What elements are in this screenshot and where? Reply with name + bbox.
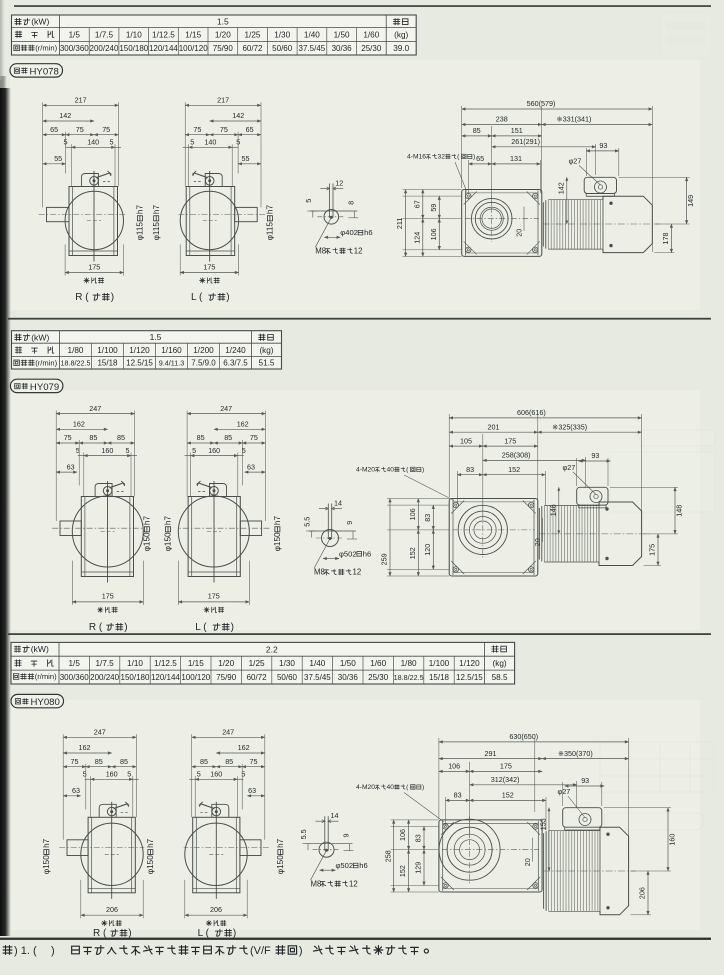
- svg-text:140: 140: [204, 138, 216, 147]
- svg-text:75: 75: [64, 433, 72, 442]
- svg-text:h7: h7: [276, 838, 285, 848]
- svg-text:(kW): (kW): [31, 644, 49, 654]
- svg-text:9: 9: [345, 521, 354, 525]
- svg-text:φ115: φ115: [266, 222, 275, 241]
- svg-text:12: 12: [335, 179, 343, 188]
- svg-text:L (: L (: [198, 928, 210, 939]
- svg-text:175: 175: [102, 592, 114, 601]
- svg-text:247: 247: [89, 404, 101, 413]
- svg-text:(kg): (kg): [394, 31, 408, 40]
- svg-text:217: 217: [75, 96, 87, 105]
- svg-text:R (: R (: [89, 622, 103, 633]
- svg-text:67: 67: [412, 200, 421, 208]
- svg-text:1/200: 1/200: [193, 346, 214, 355]
- svg-text:h6: h6: [364, 228, 372, 237]
- svg-text:M8: M8: [314, 568, 325, 577]
- svg-text:63: 63: [67, 462, 75, 471]
- svg-text:59: 59: [429, 204, 438, 212]
- svg-text:15/18: 15/18: [429, 673, 450, 682]
- svg-text:): ): [299, 945, 303, 957]
- svg-text:258: 258: [383, 850, 392, 862]
- svg-text:51.5: 51.5: [259, 359, 275, 368]
- svg-text:85: 85: [95, 757, 103, 766]
- svg-text:142: 142: [556, 182, 565, 194]
- svg-text:9: 9: [342, 834, 351, 838]
- svg-text:(r/min): (r/min): [35, 359, 57, 368]
- svg-text:15/18: 15/18: [97, 359, 118, 368]
- svg-text:5: 5: [192, 446, 196, 455]
- svg-text:65: 65: [476, 154, 484, 163]
- svg-text:): ): [111, 292, 114, 303]
- svg-text:HY079: HY079: [30, 382, 59, 393]
- svg-text:75: 75: [193, 125, 201, 134]
- svg-text:h7: h7: [164, 516, 173, 526]
- svg-text:20: 20: [515, 229, 524, 237]
- svg-text:200/240: 200/240: [90, 44, 119, 53]
- svg-text:7.5/9.0: 7.5/9.0: [191, 359, 216, 368]
- svg-text:291: 291: [485, 749, 497, 758]
- svg-text:(V/F: (V/F: [250, 945, 271, 957]
- svg-text:h6: h6: [363, 549, 371, 558]
- svg-text:1.5: 1.5: [217, 16, 229, 26]
- svg-text:151: 151: [511, 126, 523, 135]
- svg-text:20: 20: [523, 858, 532, 866]
- svg-text:85: 85: [89, 433, 97, 442]
- svg-text:φ150: φ150: [143, 532, 152, 551]
- svg-text:h6: h6: [359, 861, 367, 870]
- svg-text:): ): [128, 928, 131, 939]
- svg-text:※331(341): ※331(341): [557, 115, 592, 124]
- svg-text:M8: M8: [311, 879, 322, 888]
- svg-text:175: 175: [504, 436, 516, 445]
- svg-text:85: 85: [120, 757, 128, 766]
- svg-text:5: 5: [110, 138, 114, 147]
- svg-text:178: 178: [661, 233, 670, 245]
- svg-text:148: 148: [675, 505, 684, 517]
- svg-text:1/20: 1/20: [218, 659, 234, 668]
- svg-text:1/5: 1/5: [69, 659, 81, 668]
- svg-text:6.3/7.5: 6.3/7.5: [223, 359, 248, 368]
- svg-text:300/360: 300/360: [60, 673, 89, 682]
- svg-text:247: 247: [222, 728, 234, 737]
- svg-text:175: 175: [88, 262, 100, 271]
- svg-text:12: 12: [354, 247, 363, 256]
- svg-text:93: 93: [591, 451, 599, 460]
- svg-text:1/30: 1/30: [274, 31, 290, 40]
- svg-text:8: 8: [346, 201, 355, 205]
- svg-text:h7: h7: [143, 516, 152, 526]
- svg-text:4-M20: 4-M20: [356, 467, 375, 474]
- svg-text:1/15: 1/15: [185, 31, 201, 40]
- svg-text:): ): [422, 467, 424, 474]
- svg-text:h7: h7: [273, 516, 282, 526]
- svg-text:1/40: 1/40: [309, 659, 325, 668]
- svg-text:): ): [124, 622, 127, 633]
- svg-text:1/80: 1/80: [401, 659, 417, 668]
- svg-text:φ150: φ150: [276, 855, 285, 874]
- svg-text:φ27: φ27: [557, 787, 570, 796]
- svg-text:40: 40: [387, 784, 395, 791]
- svg-text:93: 93: [581, 776, 589, 785]
- svg-text:142: 142: [232, 111, 244, 120]
- svg-text:131: 131: [510, 154, 522, 163]
- svg-text:83: 83: [414, 834, 423, 842]
- svg-text:105: 105: [460, 436, 472, 445]
- svg-text:4-M16: 4-M16: [407, 154, 426, 161]
- svg-text:1/12.5: 1/12.5: [152, 31, 175, 40]
- svg-text:12.5/15: 12.5/15: [456, 673, 483, 682]
- svg-text:211: 211: [395, 218, 404, 229]
- svg-text:): ): [231, 622, 234, 633]
- svg-text:175: 175: [208, 592, 220, 601]
- svg-text:30/36: 30/36: [332, 44, 353, 53]
- svg-text:206: 206: [210, 905, 222, 914]
- svg-text:1/25: 1/25: [245, 31, 261, 40]
- svg-text:201: 201: [488, 422, 500, 431]
- svg-text:175: 175: [500, 762, 512, 771]
- svg-text:106: 106: [408, 508, 417, 520]
- svg-text:) 1. (: ) 1. (: [14, 945, 37, 957]
- svg-text:1/7.5: 1/7.5: [95, 31, 114, 40]
- svg-text:200/240: 200/240: [90, 673, 119, 682]
- svg-text:106: 106: [398, 829, 407, 841]
- svg-text:206: 206: [106, 905, 118, 914]
- svg-text:60/72: 60/72: [242, 44, 263, 53]
- svg-text:(kg): (kg): [493, 659, 507, 668]
- svg-text:20: 20: [533, 538, 542, 546]
- svg-text:12: 12: [353, 568, 362, 577]
- svg-text:(kg): (kg): [259, 346, 273, 355]
- svg-text:75: 75: [102, 125, 110, 134]
- svg-text:152: 152: [398, 865, 407, 877]
- svg-text:85: 85: [225, 757, 233, 766]
- svg-text:153: 153: [539, 818, 548, 830]
- svg-text:φ150: φ150: [164, 532, 173, 551]
- svg-text:1/7.5: 1/7.5: [95, 659, 114, 668]
- svg-text:φ502: φ502: [336, 861, 354, 870]
- svg-text:1/240: 1/240: [225, 346, 246, 355]
- svg-text:φ150: φ150: [146, 855, 155, 874]
- svg-text:L (: L (: [191, 292, 203, 303]
- svg-text:560(579): 560(579): [527, 99, 556, 108]
- svg-text:160: 160: [208, 446, 220, 455]
- svg-text:152: 152: [408, 547, 417, 559]
- svg-text:162: 162: [237, 420, 249, 429]
- svg-text:): ): [422, 784, 424, 791]
- svg-text:120/144: 120/144: [149, 44, 178, 53]
- svg-text:120: 120: [423, 544, 432, 556]
- svg-text:1/120: 1/120: [129, 346, 150, 355]
- svg-text:): ): [51, 945, 55, 957]
- svg-text:312(342): 312(342): [491, 775, 520, 784]
- svg-text:162: 162: [238, 743, 250, 752]
- svg-text:152: 152: [502, 791, 514, 800]
- svg-text:259: 259: [380, 553, 389, 565]
- svg-text:L (: L (: [195, 622, 207, 633]
- svg-text:63: 63: [248, 786, 256, 795]
- svg-text:100/120: 100/120: [179, 44, 208, 53]
- svg-text:12.5/15: 12.5/15: [126, 359, 153, 368]
- svg-text:φ27: φ27: [562, 463, 575, 472]
- svg-text:1/100: 1/100: [97, 346, 118, 355]
- svg-text:60/72: 60/72: [247, 673, 268, 682]
- svg-text:83: 83: [466, 465, 474, 474]
- svg-text:50/60: 50/60: [277, 673, 298, 682]
- svg-text:85: 85: [200, 757, 208, 766]
- svg-text:(kW): (kW): [31, 332, 49, 342]
- svg-text:h7: h7: [266, 205, 275, 215]
- svg-text:1/15: 1/15: [188, 659, 204, 668]
- svg-text:): ): [473, 154, 475, 161]
- svg-text:14: 14: [331, 811, 339, 820]
- svg-text:75: 75: [220, 125, 228, 134]
- svg-text:HY078: HY078: [30, 66, 59, 77]
- svg-text:1/60: 1/60: [370, 659, 386, 668]
- svg-text:5: 5: [126, 446, 130, 455]
- svg-text:M8: M8: [315, 247, 326, 256]
- svg-text:※350(370): ※350(370): [558, 749, 593, 758]
- svg-text:25/30: 25/30: [361, 44, 382, 53]
- svg-text:175: 175: [648, 544, 657, 556]
- svg-text:55: 55: [54, 154, 62, 163]
- svg-text:※325(335): ※325(335): [552, 422, 587, 431]
- svg-text:1/120: 1/120: [459, 659, 480, 668]
- svg-text:1/50: 1/50: [334, 31, 350, 40]
- svg-text:146: 146: [548, 504, 557, 516]
- svg-text:1/5: 1/5: [69, 31, 81, 40]
- svg-text:152: 152: [508, 465, 520, 474]
- svg-text:φ27: φ27: [569, 157, 582, 166]
- svg-text:φ150: φ150: [42, 855, 51, 874]
- svg-text:φ502: φ502: [339, 549, 357, 558]
- svg-text:65: 65: [246, 125, 254, 134]
- svg-text:32: 32: [438, 154, 446, 161]
- svg-text:h7: h7: [136, 205, 145, 215]
- svg-text:58.5: 58.5: [492, 673, 508, 682]
- svg-text:h7: h7: [152, 205, 161, 215]
- svg-text:(r/min): (r/min): [35, 44, 57, 53]
- svg-text:1/10: 1/10: [127, 659, 143, 668]
- svg-text:50/60: 50/60: [272, 44, 293, 53]
- svg-text:37.5/45: 37.5/45: [304, 673, 331, 682]
- svg-text:φ115: φ115: [152, 222, 161, 241]
- svg-text:30/36: 30/36: [338, 673, 359, 682]
- svg-text:149: 149: [686, 195, 695, 207]
- svg-text:18.8/22.5: 18.8/22.5: [61, 359, 91, 368]
- svg-text:140: 140: [87, 138, 99, 147]
- svg-text:162: 162: [79, 743, 91, 752]
- svg-text:1/80: 1/80: [68, 346, 84, 355]
- svg-text:606(616): 606(616): [517, 408, 546, 417]
- svg-text:83: 83: [423, 514, 432, 522]
- svg-text:85: 85: [117, 433, 125, 442]
- svg-text:1/160: 1/160: [161, 346, 182, 355]
- svg-text:238: 238: [496, 115, 508, 124]
- svg-text:5.5: 5.5: [303, 517, 312, 527]
- svg-text:65: 65: [50, 125, 58, 134]
- svg-text:55: 55: [242, 154, 250, 163]
- svg-text:261(291): 261(291): [511, 137, 540, 146]
- svg-text:5: 5: [304, 199, 313, 203]
- svg-text:75/90: 75/90: [216, 673, 237, 682]
- svg-text:12: 12: [349, 879, 358, 888]
- svg-text:75: 75: [250, 757, 258, 766]
- svg-text:1/40: 1/40: [304, 31, 320, 40]
- svg-text:φ402: φ402: [340, 228, 358, 237]
- svg-text:φ115: φ115: [136, 222, 145, 241]
- svg-text:630(650): 630(650): [509, 732, 538, 741]
- svg-text:63: 63: [247, 462, 255, 471]
- svg-text:75: 75: [71, 757, 79, 766]
- svg-text:83: 83: [454, 791, 462, 800]
- svg-text:106: 106: [448, 762, 460, 771]
- svg-text:37.5/45: 37.5/45: [299, 44, 326, 53]
- svg-text:9.4/11.3: 9.4/11.3: [159, 359, 184, 368]
- svg-text:1/100: 1/100: [429, 659, 450, 668]
- svg-text:150/180: 150/180: [119, 44, 148, 53]
- svg-text:2.2: 2.2: [266, 645, 278, 655]
- svg-text:75/90: 75/90: [213, 44, 234, 53]
- svg-text:40: 40: [387, 467, 395, 474]
- svg-text:5: 5: [190, 138, 194, 147]
- svg-text:18.8/22.5: 18.8/22.5: [394, 673, 424, 682]
- svg-text:39.0: 39.0: [393, 44, 409, 53]
- svg-text:160: 160: [106, 770, 118, 779]
- svg-text:258(308): 258(308): [502, 451, 531, 460]
- svg-text:5: 5: [197, 770, 201, 779]
- svg-text:1/12.5: 1/12.5: [154, 659, 177, 668]
- svg-text:1.5: 1.5: [150, 332, 162, 342]
- svg-text:): ): [233, 928, 236, 939]
- svg-text:300/360: 300/360: [60, 44, 89, 53]
- svg-text:φ150: φ150: [273, 532, 282, 551]
- svg-text:75: 75: [250, 433, 258, 442]
- svg-text:1/10: 1/10: [126, 31, 142, 40]
- svg-text:1/60: 1/60: [363, 31, 379, 40]
- svg-text:160: 160: [668, 834, 677, 846]
- svg-text:h7: h7: [42, 838, 51, 848]
- svg-text:HY080: HY080: [31, 697, 60, 708]
- svg-text:(kW): (kW): [31, 17, 49, 27]
- svg-text:63: 63: [72, 786, 80, 795]
- svg-text:162: 162: [73, 420, 85, 429]
- svg-text:4-M20: 4-M20: [356, 784, 375, 791]
- svg-text:160: 160: [101, 446, 113, 455]
- svg-text:1/20: 1/20: [215, 31, 231, 40]
- svg-text:150/180: 150/180: [121, 673, 150, 682]
- svg-text:100/120: 100/120: [181, 673, 210, 682]
- svg-text:217: 217: [217, 96, 229, 105]
- svg-text:93: 93: [599, 141, 607, 150]
- svg-text:14: 14: [334, 499, 342, 508]
- svg-text:124: 124: [412, 232, 421, 244]
- svg-text:106: 106: [429, 228, 438, 240]
- svg-text:247: 247: [94, 728, 106, 737]
- svg-text:75: 75: [76, 125, 84, 134]
- svg-text:85: 85: [197, 433, 205, 442]
- svg-text:1/25: 1/25: [249, 659, 265, 668]
- svg-text:R (: R (: [75, 292, 89, 303]
- svg-text:1/50: 1/50: [340, 659, 356, 668]
- svg-text:h7: h7: [146, 838, 155, 848]
- svg-text:160: 160: [210, 770, 222, 779]
- svg-text:129: 129: [414, 862, 423, 874]
- svg-text:247: 247: [220, 404, 232, 413]
- svg-text:5.5: 5.5: [299, 829, 308, 839]
- svg-text:25/30: 25/30: [368, 673, 389, 682]
- svg-text:142: 142: [59, 111, 71, 120]
- svg-text:120/144: 120/144: [151, 673, 180, 682]
- svg-text:5: 5: [127, 770, 131, 779]
- svg-text:): ): [226, 292, 229, 303]
- svg-text:85: 85: [473, 126, 481, 135]
- svg-text:175: 175: [203, 262, 215, 271]
- svg-text:(r/min): (r/min): [35, 672, 57, 681]
- svg-text:85: 85: [224, 433, 232, 442]
- svg-text:1/30: 1/30: [279, 659, 295, 668]
- svg-text:R (: R (: [93, 928, 107, 939]
- svg-text:206: 206: [638, 887, 647, 899]
